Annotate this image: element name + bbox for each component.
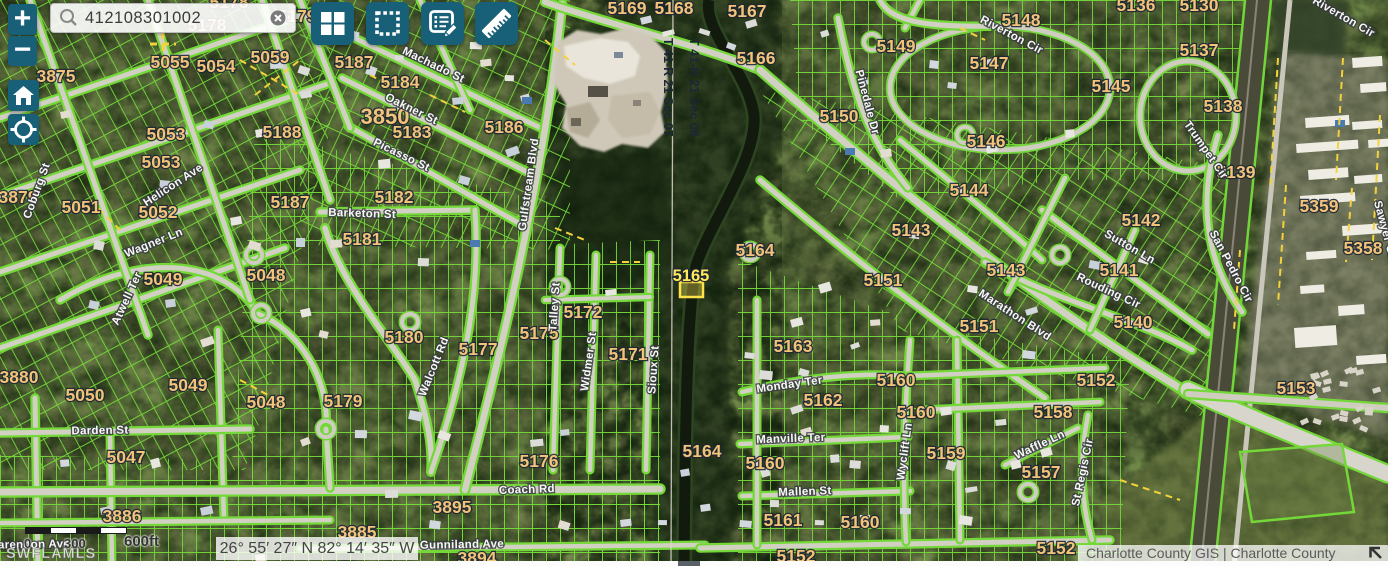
svg-text:5048: 5048 bbox=[247, 265, 286, 285]
svg-text:5153: 5153 bbox=[1277, 378, 1316, 398]
svg-text:5172: 5172 bbox=[564, 302, 603, 322]
svg-text:5157: 5157 bbox=[1022, 462, 1061, 482]
svg-text:5158: 5158 bbox=[1034, 402, 1073, 422]
svg-text:5143: 5143 bbox=[987, 260, 1026, 280]
svg-text:5050: 5050 bbox=[66, 385, 105, 405]
svg-text:5187: 5187 bbox=[271, 192, 310, 212]
svg-text:5358: 5358 bbox=[1344, 238, 1383, 258]
svg-text:5161: 5161 bbox=[764, 510, 803, 530]
svg-text:5150: 5150 bbox=[820, 106, 859, 126]
svg-text:Mallen St: Mallen St bbox=[778, 485, 832, 499]
svg-text:5168: 5168 bbox=[655, 0, 694, 18]
svg-text:5187: 5187 bbox=[335, 52, 374, 72]
svg-text:5049: 5049 bbox=[169, 375, 208, 395]
svg-text:5183: 5183 bbox=[393, 122, 432, 142]
svg-text:5359: 5359 bbox=[1300, 196, 1339, 216]
svg-text:5160: 5160 bbox=[877, 370, 916, 390]
svg-text:5130: 5130 bbox=[1180, 0, 1219, 15]
svg-text:5186: 5186 bbox=[485, 117, 524, 137]
svg-text:5164: 5164 bbox=[736, 240, 775, 260]
svg-text:5166: 5166 bbox=[737, 48, 776, 68]
svg-text:5151: 5151 bbox=[960, 316, 999, 336]
svg-text:5137: 5137 bbox=[1180, 40, 1219, 60]
svg-text:5143: 5143 bbox=[892, 220, 931, 240]
svg-text:5053: 5053 bbox=[147, 124, 186, 144]
svg-text:5141: 5141 bbox=[1100, 260, 1139, 280]
svg-text:5053: 5053 bbox=[142, 152, 181, 172]
svg-text:5163: 5163 bbox=[774, 336, 813, 356]
svg-text:5188: 5188 bbox=[263, 122, 302, 142]
svg-text:3886: 3886 bbox=[103, 506, 142, 526]
svg-text:5138: 5138 bbox=[1204, 96, 1243, 116]
svg-text:5059: 5059 bbox=[251, 47, 290, 67]
svg-text:Darden St: Darden St bbox=[71, 425, 128, 438]
svg-text:5146: 5146 bbox=[967, 131, 1006, 151]
svg-text:5182: 5182 bbox=[375, 187, 414, 207]
svg-text:5144: 5144 bbox=[950, 180, 989, 200]
svg-text:5055: 5055 bbox=[151, 52, 190, 72]
svg-text:5159: 5159 bbox=[927, 443, 966, 463]
svg-text:5152: 5152 bbox=[1077, 370, 1116, 390]
svg-text:5179: 5179 bbox=[324, 391, 363, 411]
svg-text:T 41-R 21 Sec 08: T 41-R 21 Sec 08 bbox=[687, 38, 701, 137]
svg-text:Coach Rd: Coach Rd bbox=[499, 483, 555, 497]
svg-text:5136: 5136 bbox=[1117, 0, 1156, 15]
svg-text:5176: 5176 bbox=[520, 451, 559, 471]
svg-text:5048: 5048 bbox=[247, 392, 286, 412]
svg-text:5145: 5145 bbox=[1092, 76, 1131, 96]
svg-text:5169: 5169 bbox=[608, 0, 647, 18]
svg-text:Gunniland Ave: Gunniland Ave bbox=[420, 538, 504, 551]
svg-text:5160: 5160 bbox=[841, 512, 880, 532]
svg-text:5162: 5162 bbox=[804, 390, 843, 410]
svg-text:5164: 5164 bbox=[683, 441, 722, 461]
svg-text:5167: 5167 bbox=[728, 1, 767, 21]
svg-text:5051: 5051 bbox=[62, 197, 101, 217]
svg-text:5147: 5147 bbox=[970, 53, 1009, 73]
svg-text:5151: 5151 bbox=[864, 270, 903, 290]
svg-text:5184: 5184 bbox=[381, 72, 420, 92]
svg-text:5049: 5049 bbox=[144, 269, 183, 289]
svg-text:3875: 3875 bbox=[37, 66, 76, 86]
svg-text:5142: 5142 bbox=[1122, 210, 1161, 230]
svg-text:5149: 5149 bbox=[877, 36, 916, 56]
svg-text:T 41-R 21 Sec 07: T 41-R 21 Sec 07 bbox=[661, 38, 675, 137]
svg-text:5054: 5054 bbox=[197, 56, 236, 76]
svg-text:3895: 3895 bbox=[433, 497, 472, 517]
svg-text:5181: 5181 bbox=[343, 229, 382, 249]
svg-text:5160: 5160 bbox=[897, 402, 936, 422]
svg-text:5160: 5160 bbox=[746, 453, 785, 473]
svg-text:5177: 5177 bbox=[459, 339, 498, 359]
svg-text:Barketon St: Barketon St bbox=[328, 207, 396, 221]
svg-text:5165: 5165 bbox=[673, 267, 710, 285]
svg-text:5171: 5171 bbox=[609, 344, 648, 364]
svg-text:Manville Ter: Manville Ter bbox=[756, 432, 826, 446]
svg-text:5180: 5180 bbox=[385, 327, 424, 347]
svg-text:3880: 3880 bbox=[0, 367, 39, 387]
svg-text:5152: 5152 bbox=[1037, 538, 1076, 558]
svg-text:5047: 5047 bbox=[107, 447, 146, 467]
svg-text:5140: 5140 bbox=[1114, 312, 1153, 332]
